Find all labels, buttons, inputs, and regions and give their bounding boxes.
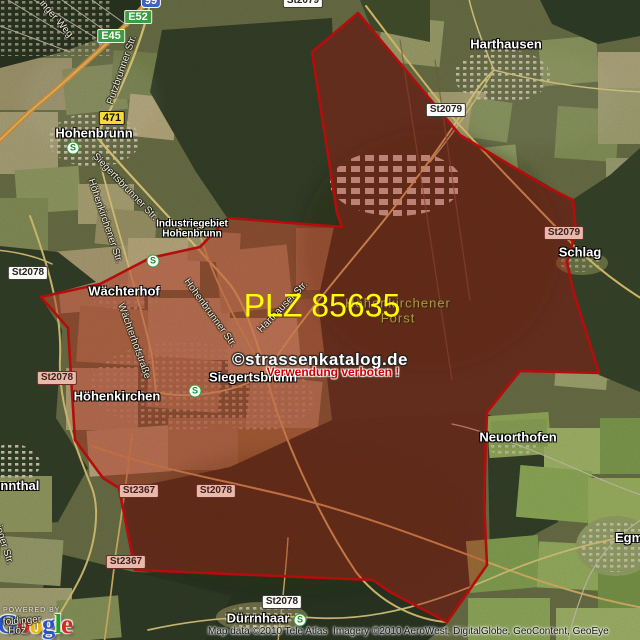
- road-shield-st2367-a: St2367: [119, 484, 159, 498]
- road-shield-st2079-top: St2079: [283, 0, 323, 8]
- road-shield-st2079-right: St2079: [544, 226, 584, 240]
- street-label-hoez-fragment: Höz: [8, 626, 26, 637]
- sbahn-station-icon: S: [294, 614, 307, 627]
- place-label-hoehenkirchen: Höhenkirchen: [74, 389, 161, 404]
- road-shield-st2079-mid: St2079: [426, 103, 466, 117]
- place-label-duerrnhaar: Dürrnhaar: [227, 611, 290, 626]
- map-viewport[interactable]: Putzbrunner Str. Siegertsbrunner Str. Hö…: [0, 0, 640, 640]
- plz-title: PLZ 85635: [244, 288, 401, 325]
- place-label-brunnthal: Brunnthal: [0, 478, 39, 493]
- road-shield-st2078-mid: St2078: [37, 371, 77, 385]
- road-shield-st2078-bottom: St2078: [262, 595, 302, 609]
- watermark-warning: Verwendung verboten !: [267, 365, 400, 379]
- motorway-shield-99: 99: [141, 0, 161, 8]
- road-shield-st2078-forest: St2078: [196, 484, 236, 498]
- place-label-industriegebiet-line2: Hohenbrunn: [162, 229, 221, 240]
- place-label-waechterhof: Wächterhof: [88, 284, 160, 299]
- sbahn-station-icon: S: [147, 255, 160, 268]
- eroad-shield-e52: E52: [124, 10, 152, 24]
- road-shield-st2367-b: St2367: [106, 555, 146, 569]
- place-label-egmating: Egmating: [615, 530, 640, 545]
- map-attribution: Map data ©2010 Tele Atlas Imagery ©2010 …: [208, 626, 609, 637]
- sbahn-station-icon: S: [189, 385, 202, 398]
- place-label-hohenbrunn: Hohenbrunn: [55, 126, 132, 141]
- road-shield-st2078-left: St2078: [8, 266, 48, 280]
- place-label-neuorthofen: Neuorthofen: [479, 430, 556, 445]
- place-label-harthausen: Harthausen: [470, 37, 542, 52]
- place-label-schlag: Schlag: [559, 245, 602, 260]
- bundesstrasse-shield-471: 471: [99, 111, 125, 125]
- google-logo-letter: e: [61, 609, 72, 639]
- sbahn-station-icon: S: [67, 142, 80, 155]
- google-logo-letter: g: [42, 609, 55, 639]
- eroad-shield-e45: E45: [97, 29, 125, 43]
